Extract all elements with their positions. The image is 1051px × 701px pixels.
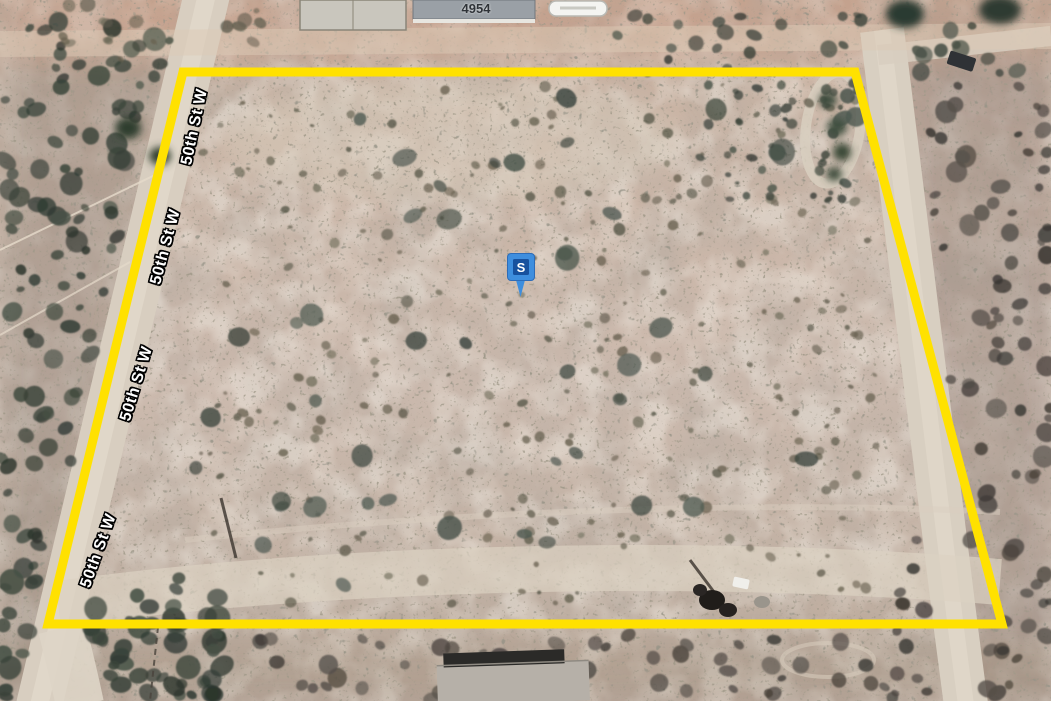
property-marker-pin[interactable]: S [506,252,536,300]
address-number-label: 4954 [445,1,507,16]
marker-letter: S [517,260,526,275]
marker-tail [516,280,525,297]
satellite-map-view: 50th St W 50th St W 50th St W 50th St W … [0,0,1051,701]
